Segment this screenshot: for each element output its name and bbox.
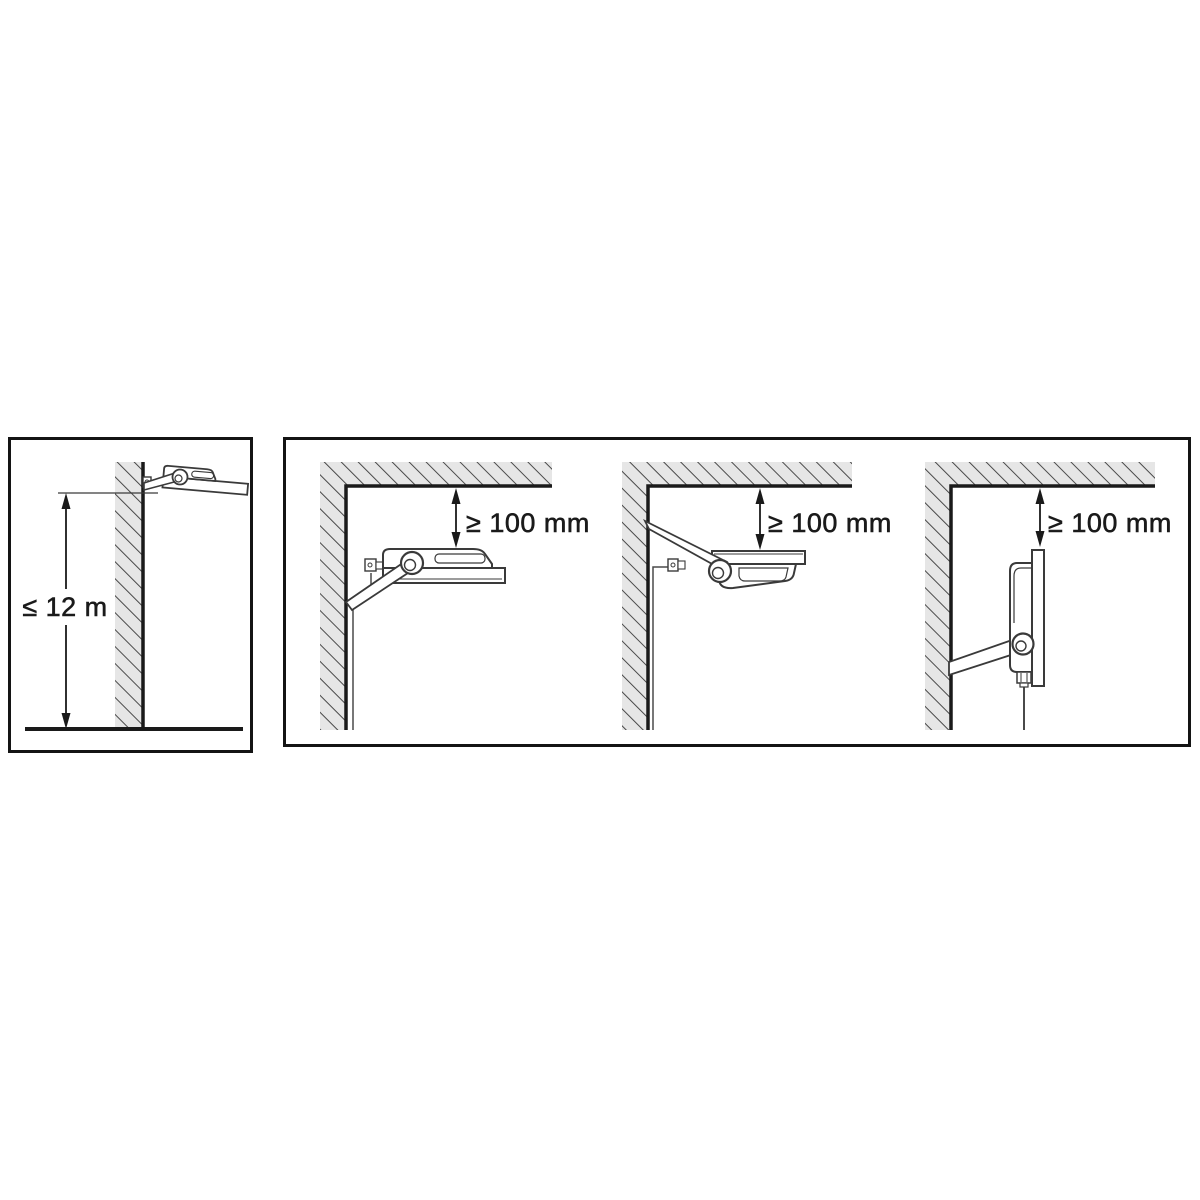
max-height-panel: ≤ 12 m: [8, 437, 253, 753]
clearance-diagram-tilted: ≥ 100 mm: [320, 462, 590, 730]
wall: [115, 462, 143, 729]
max-height-label: ≤ 12 m: [22, 592, 107, 622]
arrow-up-icon: [756, 488, 765, 504]
wall-ceiling-corner: [622, 462, 852, 730]
ceiling-clearance-panel: ≥ 100 mm: [283, 437, 1191, 747]
clearance-diagram-vertical: ≥ 100 mm: [925, 462, 1172, 730]
clearance-dimension: ≥ 100 mm: [756, 488, 892, 550]
arrow-down-icon: [452, 532, 461, 548]
clearance-label: ≥ 100 mm: [768, 508, 892, 538]
arrow-up-icon: [452, 488, 461, 504]
arrow-down-icon: [756, 534, 765, 550]
floodlight-tilted-icon: [346, 549, 505, 730]
height-dimension: ≤ 12 m: [22, 493, 107, 729]
max-height-diagram: ≤ 12 m: [8, 437, 253, 753]
floodlight-face-up-icon: [645, 521, 805, 730]
arrow-up-icon: [62, 493, 71, 509]
clearance-label: ≥ 100 mm: [1048, 508, 1172, 538]
clearance-diagram-face-up: ≥ 100 mm: [622, 462, 892, 730]
arrow-down-icon: [62, 713, 71, 729]
ceiling-clearance-diagrams: ≥ 100 mm: [283, 437, 1191, 747]
floodlight-vertical-icon: [949, 550, 1044, 730]
floodlight-side-icon: [143, 465, 249, 494]
clearance-dimension: ≥ 100 mm: [452, 488, 590, 548]
clearance-dimension: ≥ 100 mm: [1036, 488, 1172, 547]
arrow-down-icon: [1036, 531, 1045, 547]
clearance-label: ≥ 100 mm: [466, 508, 590, 538]
arrow-up-icon: [1036, 488, 1045, 504]
installation-instruction-figure: ≤ 12 m: [0, 0, 1200, 1200]
